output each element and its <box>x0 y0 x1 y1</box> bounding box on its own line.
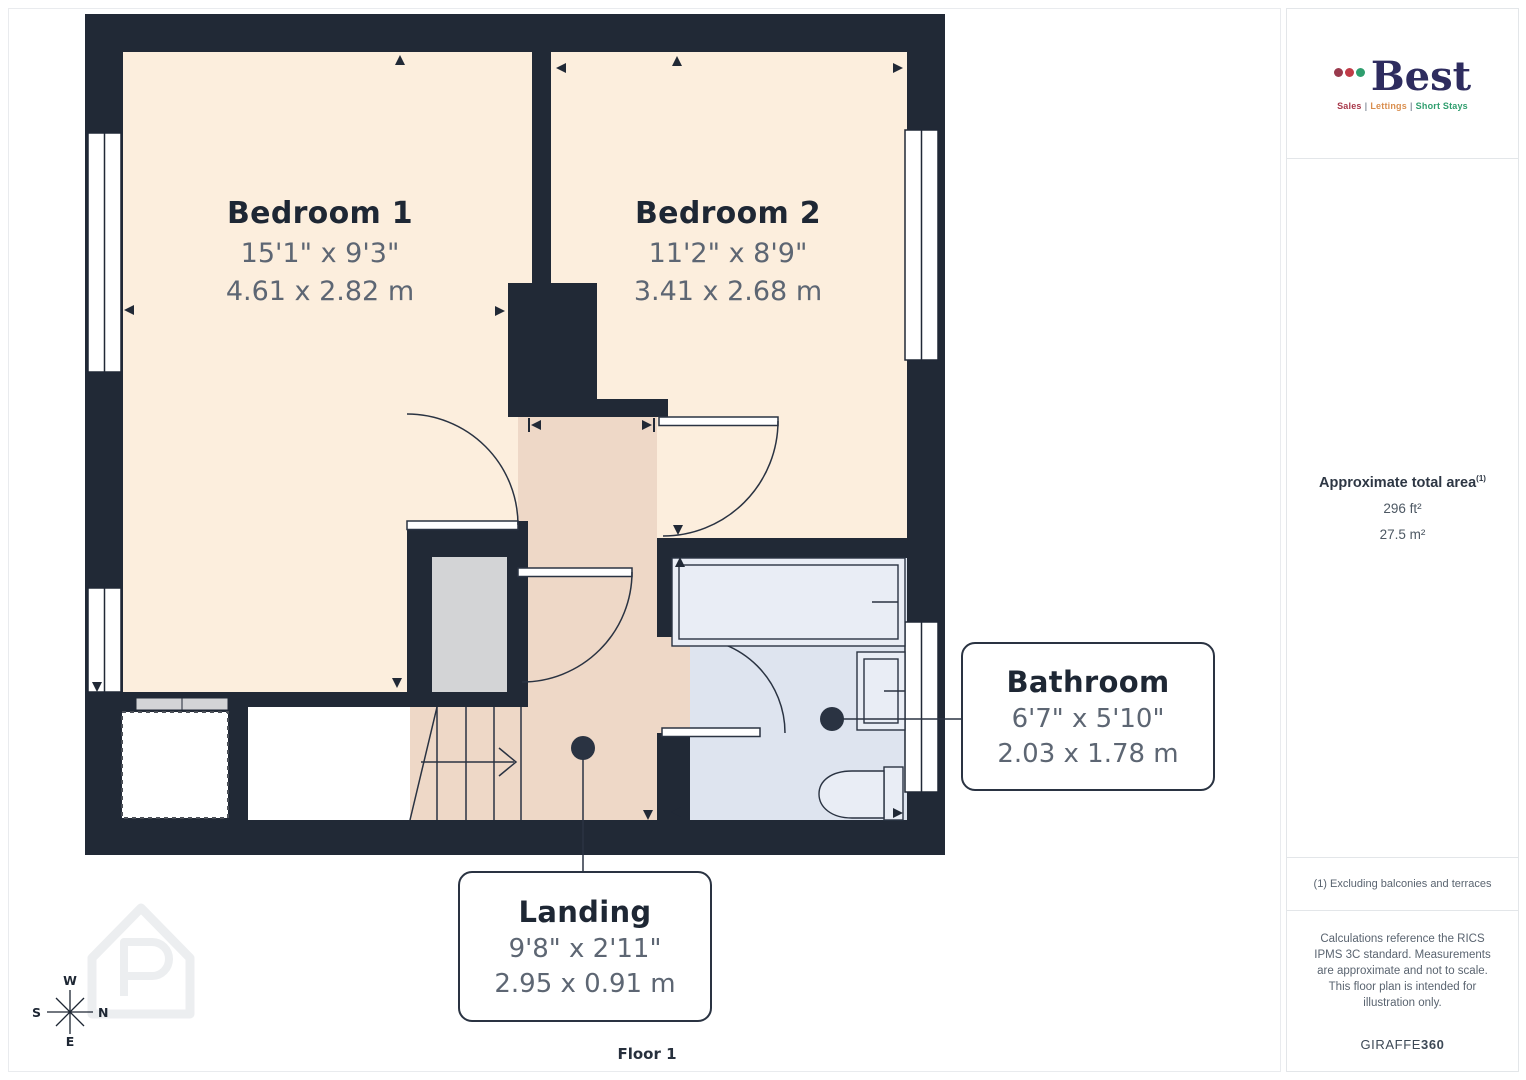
room-dims-imperial: 6'7" x 5'10" <box>1012 704 1165 734</box>
total-area-metric: 27.5 m² <box>1380 527 1426 542</box>
agency-logo-section: Best Sales|Lettings|Short Stays <box>1287 9 1518 159</box>
floor-label: Floor 1 <box>547 1045 747 1063</box>
bathroom-door-leaf <box>662 728 760 737</box>
bathroom-leader-dot <box>820 707 844 731</box>
tagline-lettings: Lettings <box>1370 101 1407 111</box>
compass-north: N <box>98 1005 108 1020</box>
room-name: Bedroom 1 <box>155 196 485 231</box>
closet-floor <box>432 557 507 692</box>
giraffe-watermark-icon <box>92 908 190 1014</box>
room-dims-imperial: 9'8" x 2'11" <box>509 934 662 964</box>
logo-dots-icon <box>1334 68 1367 77</box>
total-area-section: Approximate total area(1) 296 ft² 27.5 m… <box>1287 159 1518 858</box>
total-area-imperial: 296 ft² <box>1383 501 1421 516</box>
agency-name: Best <box>1371 57 1471 97</box>
landing-top-wall <box>597 399 668 417</box>
compass-south: S <box>32 1005 41 1020</box>
bathroom-callout: Bathroom 6'7" x 5'10" 2.03 x 1.78 m <box>961 642 1215 791</box>
bedroom2-label: Bedroom 2 11'2" x 8'9" 3.41 x 2.68 m <box>563 196 893 307</box>
bathtub-icon <box>672 558 905 646</box>
compass-west: W <box>63 973 77 988</box>
room-name: Landing <box>519 895 652 929</box>
bedroom2-door-leaf <box>659 417 778 426</box>
brand-bold: 360 <box>1421 1037 1445 1052</box>
landing-leader-dot <box>571 736 595 760</box>
stair-void <box>248 707 410 820</box>
floorplan-page: W S N E Bedroom 1 15'1" x 9'3" 4.61 x 2.… <box>0 0 1526 1080</box>
agency-tagline: Sales|Lettings|Short Stays <box>1337 101 1468 111</box>
compass-east: E <box>66 1034 75 1049</box>
footnote-text: (1) Excluding balconies and terraces <box>1314 878 1492 890</box>
room-dims-imperial: 15'1" x 9'3" <box>155 238 485 269</box>
footnote-section: (1) Excluding balconies and terraces <box>1287 858 1518 911</box>
giraffe360-brand: GIRAFFE360 <box>1360 1037 1444 1052</box>
total-area-title-text: Approximate total area <box>1319 474 1476 490</box>
dashed-void <box>122 712 228 818</box>
room-name: Bathroom <box>1007 665 1170 699</box>
bathroom-door-opening <box>657 637 690 733</box>
brand-normal: GIRAFFE <box>1360 1037 1421 1052</box>
landing-door-leaf <box>518 568 632 577</box>
room-dims-imperial: 11'2" x 8'9" <box>563 238 893 269</box>
info-sidebar: Best Sales|Lettings|Short Stays Approxim… <box>1286 8 1519 1072</box>
total-area-title: Approximate total area(1) <box>1319 474 1486 491</box>
tagline-sales: Sales <box>1337 101 1362 111</box>
room-dims-metric: 2.95 x 0.91 m <box>494 969 675 999</box>
disclaimer-text: Calculations reference the RICS IPMS 3C … <box>1312 931 1494 1011</box>
bedroom1-door-leaf <box>407 521 518 530</box>
tagline-separator: | <box>1365 101 1368 111</box>
agency-logo: Best <box>1334 57 1471 97</box>
total-area-footnote-marker: (1) <box>1476 474 1486 483</box>
toilet-icon <box>819 771 884 818</box>
room-dims-metric: 3.41 x 2.68 m <box>563 276 893 307</box>
disclaimer-section: Calculations reference the RICS IPMS 3C … <box>1287 911 1518 1071</box>
landing-callout: Landing 9'8" x 2'11" 2.95 x 0.91 m <box>458 871 712 1022</box>
bedroom1-label: Bedroom 1 15'1" x 9'3" 4.61 x 2.82 m <box>155 196 485 307</box>
room-dims-metric: 2.03 x 1.78 m <box>997 739 1178 769</box>
tagline-separator: | <box>1410 101 1413 111</box>
tagline-short-stays: Short Stays <box>1416 101 1468 111</box>
room-dims-metric: 4.61 x 2.82 m <box>155 276 485 307</box>
compass-icon <box>47 990 93 1034</box>
room-name: Bedroom 2 <box>563 196 893 231</box>
